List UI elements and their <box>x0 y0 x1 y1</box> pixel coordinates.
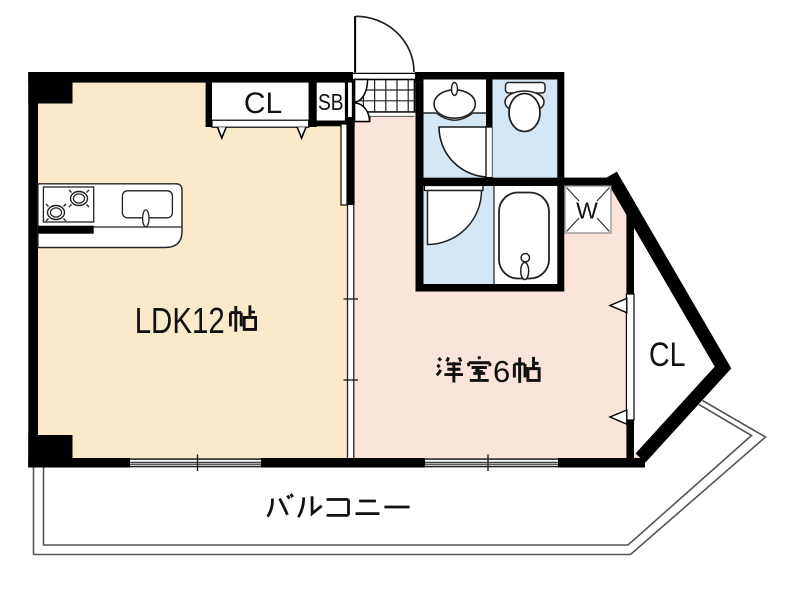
svg-text:CL: CL <box>244 87 282 120</box>
svg-text:W: W <box>576 198 598 224</box>
svg-text:LDK12: LDK12 <box>135 300 225 341</box>
svg-text:SB: SB <box>318 89 344 115</box>
svg-text:6: 6 <box>493 354 510 389</box>
svg-text:CL: CL <box>649 336 686 374</box>
